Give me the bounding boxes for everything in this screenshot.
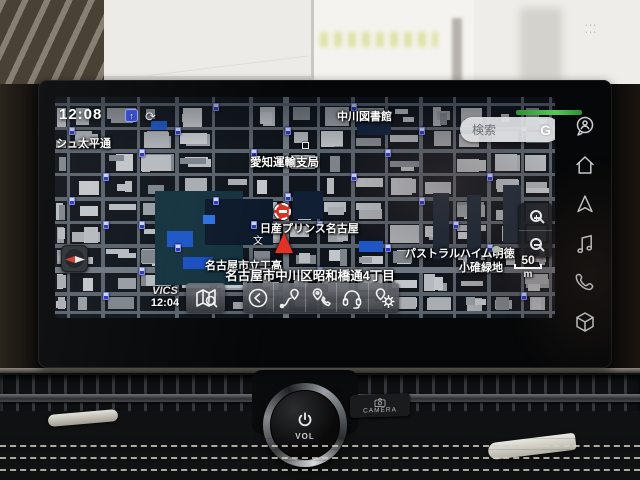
vics-timestamp: VICS 12:04 [141,285,189,309]
lower-dashboard: VOL CAMERA [0,368,640,480]
power-icon [295,410,315,430]
no-entry-sign-icon [274,203,291,220]
map-label-park: 小碓緑地 [459,259,503,275]
reflection-smudge [520,8,562,80]
stitch-line [0,469,640,471]
stitch-line [0,457,640,459]
map-label-transport-office: 愛知運輸支局 [250,154,319,170]
map-icon[interactable] [573,192,597,216]
zoom-in-icon [530,210,542,222]
quick-menu-toolbar [243,283,399,312]
camera-icon [374,397,386,406]
back-icon [246,286,270,310]
search-placeholder: 検索 [472,121,496,138]
phone-icon[interactable] [573,271,597,295]
camera-label: CAMERA [363,406,397,414]
blurred-pole [452,18,462,82]
school-symbol: 文 [253,232,263,247]
voice-assistant-icon[interactable] [573,114,597,138]
map-label-hall: 中川図書館 [337,108,392,124]
back-button[interactable] [243,283,273,312]
dash-right-edge [610,84,640,370]
location-arrow-icon [278,286,302,310]
poi-settings-button[interactable] [368,283,399,312]
hardkey-sidebar [565,114,605,334]
stitch-line [0,445,640,447]
upload-icon: ↑ [125,109,138,122]
google-logo: G [540,122,551,138]
poi-phone-button[interactable] [305,283,336,312]
blurred-sign [320,32,438,47]
map-scale: 50 m [507,254,549,280]
dash-left-edge [0,84,40,370]
car-dashboard-photo: ······ 12:08 ↑ ⟳ ッシュ太平通 中川図書館 愛知運輸支局 日産プ… [0,0,640,480]
headset-icon [340,286,364,310]
pin-phone-icon [309,286,333,310]
current-address: 名古屋市中川区昭和橋通4丁目 [195,265,425,284]
map-search-icon [194,286,218,310]
tree-icon [492,246,501,257]
apps-icon[interactable] [573,310,597,334]
zoom-in-button[interactable] [519,203,552,230]
windshield-background: ······ [0,0,640,86]
roof-shadow [0,0,112,86]
clock: 12:08 [59,106,102,123]
home-icon[interactable] [573,153,597,177]
building-icon [302,142,309,149]
ceiling-dots: ······ [585,22,599,44]
sync-icon: ⟳ [145,109,156,125]
audio-icon[interactable] [573,232,597,256]
pin-gear-icon [372,286,396,310]
stitched-dash-pad [0,438,640,480]
scale-bar [514,267,542,269]
current-position-marker [275,233,293,253]
infotainment-screen: 12:08 ↑ ⟳ ッシュ太平通 中川図書館 愛知運輸支局 日産プリンス名古屋 … [38,80,612,368]
camera-button[interactable]: CAMERA [350,393,410,418]
vent-lever-left[interactable] [48,409,119,427]
map-label-street: ッシュ太平通 [55,135,111,151]
compass-button[interactable] [61,245,88,272]
map-search-button[interactable] [186,283,225,312]
search-input[interactable]: 検索 G [460,117,555,142]
zoom-panel [519,203,552,257]
route-button[interactable] [273,283,304,312]
operator-button[interactable] [336,283,367,312]
navigation-map[interactable]: 12:08 ↑ ⟳ ッシュ太平通 中川図書館 愛知運輸支局 日産プリンス名古屋 … [55,97,555,318]
zoom-out-icon [530,238,542,250]
